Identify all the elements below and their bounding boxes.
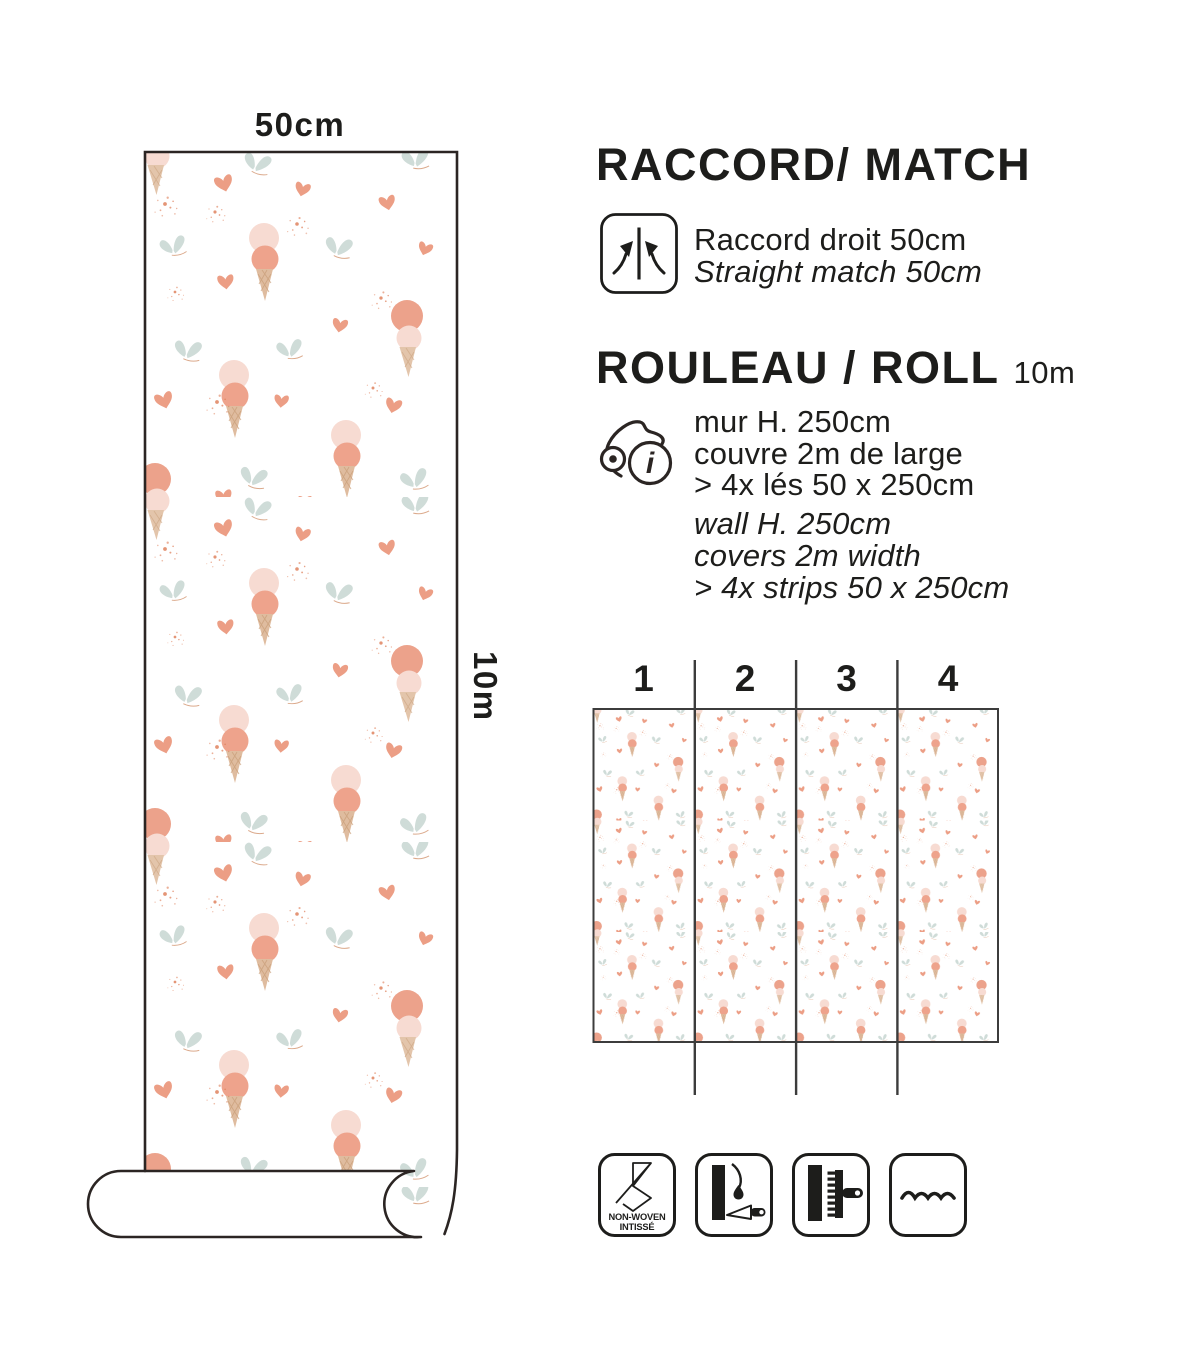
wallpaper-strip	[145, 152, 457, 1234]
match-text-fr: Raccord droit 50cm	[694, 224, 982, 256]
straight-match-icon	[600, 213, 678, 294]
match-title: RACCORD/ MATCH	[596, 142, 1031, 187]
strips-diagram: 1 2 3 4	[580, 645, 1110, 1105]
strip-number-1: 1	[633, 658, 654, 699]
roll-text-en-3: > 4x strips 50 x 250cm	[694, 572, 1009, 604]
washable-icon	[889, 1153, 967, 1237]
roll-info-icon: i	[597, 410, 689, 498]
info-glyph: i	[646, 447, 655, 480]
non-woven-icon: NON-WOVEN INTISSÉ	[598, 1153, 676, 1237]
wallpaper-roll-figure	[60, 140, 520, 1260]
width-label: 50cm	[220, 106, 380, 144]
product-sheet: 50cm 10m RACCORD/ MATCH Raccord droit 50…	[0, 0, 1200, 1353]
length-label: 10m	[466, 651, 504, 722]
roll-text-en-1: wall H. 250cm	[694, 508, 1009, 540]
strip-number-3: 3	[836, 658, 857, 699]
non-woven-label-fr: INTISSÉ	[620, 1222, 655, 1232]
roll-text-fr-3: > 4x lés 50 x 250cm	[694, 469, 974, 501]
paste-the-wall-icon	[695, 1153, 773, 1237]
strip-number-2: 2	[735, 658, 756, 699]
roll-length-badge: 10m	[1013, 355, 1075, 390]
match-text-en: Straight match 50cm	[694, 256, 982, 288]
smoothing-brush-icon	[792, 1153, 870, 1237]
roll-title: ROULEAU / ROLL10m	[596, 345, 1075, 390]
non-woven-label-en: NON-WOVEN	[608, 1212, 666, 1222]
roll-text-fr-2: couvre 2m de large	[694, 438, 974, 470]
roll-text-en-2: covers 2m width	[694, 540, 1009, 572]
roll-title-text: ROULEAU / ROLL	[596, 342, 999, 393]
strip-number-4: 4	[938, 658, 959, 699]
roll-cylinder	[88, 1171, 421, 1237]
roll-text-fr-1: mur H. 250cm	[694, 406, 974, 438]
